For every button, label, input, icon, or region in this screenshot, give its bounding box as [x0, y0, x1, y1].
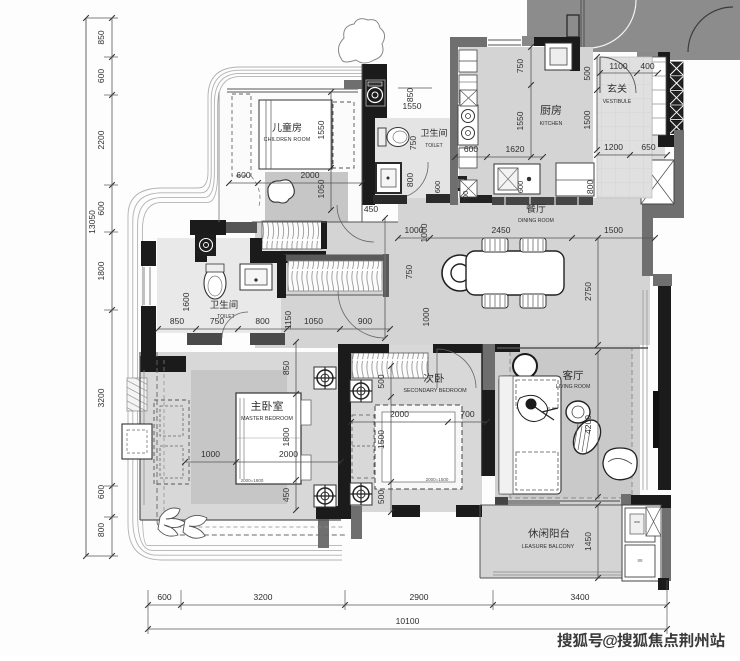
svg-text:750: 750 — [515, 59, 525, 73]
svg-text:DINING ROOM: DINING ROOM — [518, 218, 554, 224]
svg-text:@: @ — [602, 633, 618, 650]
svg-text:1050: 1050 — [304, 316, 323, 326]
svg-text:MASTER BEDROOM: MASTER BEDROOM — [241, 416, 293, 422]
svg-text:400: 400 — [640, 61, 654, 71]
svg-text:600: 600 — [96, 201, 106, 215]
svg-text:==: == — [634, 520, 640, 526]
svg-text:1800: 1800 — [281, 427, 291, 446]
svg-text:3400: 3400 — [571, 592, 590, 602]
svg-text:850: 850 — [170, 316, 184, 326]
svg-text:1500: 1500 — [582, 110, 592, 129]
svg-text:750: 750 — [408, 136, 418, 150]
svg-text:2200: 2200 — [96, 130, 106, 149]
svg-text:1450: 1450 — [583, 532, 593, 551]
svg-text:850: 850 — [281, 361, 291, 375]
svg-text:700: 700 — [460, 409, 474, 419]
svg-text:1550: 1550 — [515, 111, 525, 130]
svg-text:1200: 1200 — [604, 142, 623, 152]
svg-text:600: 600 — [96, 69, 106, 83]
svg-text:1550: 1550 — [316, 120, 326, 139]
svg-text:450: 450 — [281, 488, 291, 502]
svg-text:TOILET: TOILET — [217, 314, 234, 320]
svg-text:VESTIBULE: VESTIBULE — [603, 99, 632, 105]
svg-text:1800: 1800 — [96, 261, 106, 280]
svg-text:450: 450 — [364, 204, 378, 214]
svg-text:1550: 1550 — [403, 101, 422, 111]
svg-text:1000: 1000 — [201, 449, 220, 459]
svg-text:1000: 1000 — [421, 307, 431, 326]
svg-text:600: 600 — [157, 592, 171, 602]
svg-text:KITCHEN: KITCHEN — [540, 121, 563, 127]
svg-text:500: 500 — [376, 490, 386, 504]
svg-text:TOILET: TOILET — [425, 143, 442, 149]
svg-text:850: 850 — [405, 88, 415, 102]
svg-text:800: 800 — [96, 523, 106, 537]
svg-text:1050: 1050 — [316, 179, 326, 198]
svg-text:SECONDARY BEDROOM: SECONDARY BEDROOM — [403, 388, 467, 394]
svg-text:600: 600 — [96, 485, 106, 499]
svg-text:2900: 2900 — [410, 592, 429, 602]
svg-text:1100: 1100 — [609, 61, 628, 71]
svg-text:200: 200 — [461, 191, 470, 204]
svg-text:LIVING ROOM: LIVING ROOM — [556, 384, 591, 390]
svg-text:1000: 1000 — [419, 223, 429, 242]
svg-text:10100: 10100 — [396, 616, 420, 626]
svg-text:650: 650 — [641, 142, 655, 152]
svg-text:4200: 4200 — [583, 415, 593, 434]
svg-text:750: 750 — [404, 265, 414, 279]
svg-text:2000: 2000 — [279, 449, 298, 459]
svg-text:2000: 2000 — [390, 409, 409, 419]
svg-text:CHILDREN ROOM: CHILDREN ROOM — [264, 137, 311, 143]
svg-text:2450: 2450 — [492, 225, 511, 235]
svg-text:2750: 2750 — [583, 282, 593, 301]
svg-text:900: 900 — [358, 316, 372, 326]
svg-text:LEASURE BALCONY: LEASURE BALCONY — [522, 544, 575, 550]
svg-text:600: 600 — [236, 170, 250, 180]
svg-text:500: 500 — [376, 374, 386, 388]
svg-text:800: 800 — [255, 316, 269, 326]
svg-text:850: 850 — [96, 30, 106, 44]
svg-text:500: 500 — [582, 66, 592, 80]
svg-text:2000=1800: 2000=1800 — [241, 478, 264, 483]
svg-text:3200: 3200 — [96, 388, 106, 407]
svg-text:600: 600 — [516, 181, 525, 194]
svg-text:3200: 3200 — [254, 592, 273, 602]
svg-text:1620: 1620 — [506, 144, 525, 154]
svg-text:800: 800 — [405, 173, 415, 187]
svg-text:800: 800 — [585, 180, 595, 194]
svg-text:88: 88 — [637, 558, 643, 563]
svg-text:2000: 2000 — [301, 170, 320, 180]
svg-text:2000=1500: 2000=1500 — [426, 477, 449, 482]
svg-text:1500: 1500 — [604, 225, 623, 235]
svg-text:600: 600 — [464, 144, 478, 154]
svg-text:1600: 1600 — [181, 292, 191, 311]
svg-text:1150: 1150 — [283, 311, 293, 330]
svg-text:1500: 1500 — [376, 430, 386, 449]
svg-text:600: 600 — [433, 181, 442, 194]
